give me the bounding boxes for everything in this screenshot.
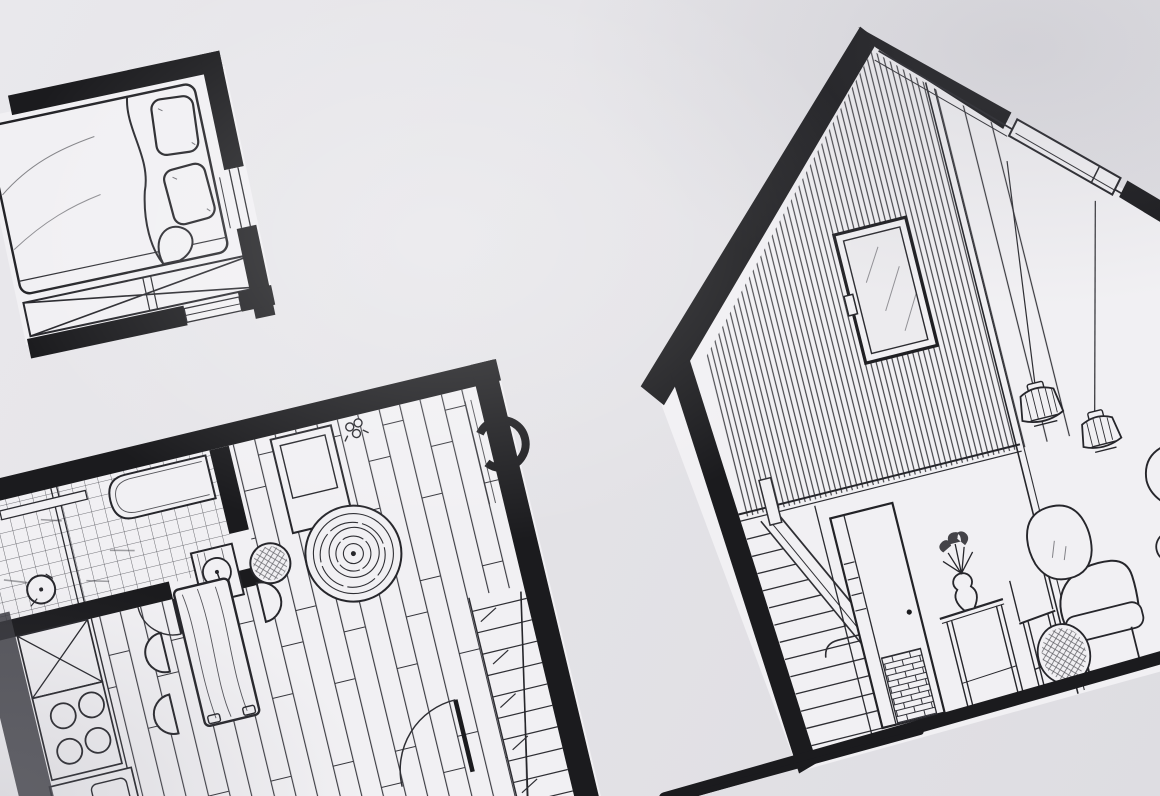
sketch-photo [0,0,1160,796]
pillow [150,95,199,156]
house-cross-section [495,0,1160,796]
apartment-floor-plan [0,357,620,796]
bedroom-floor-plan [0,50,277,366]
sketch-canvas [0,0,1160,796]
